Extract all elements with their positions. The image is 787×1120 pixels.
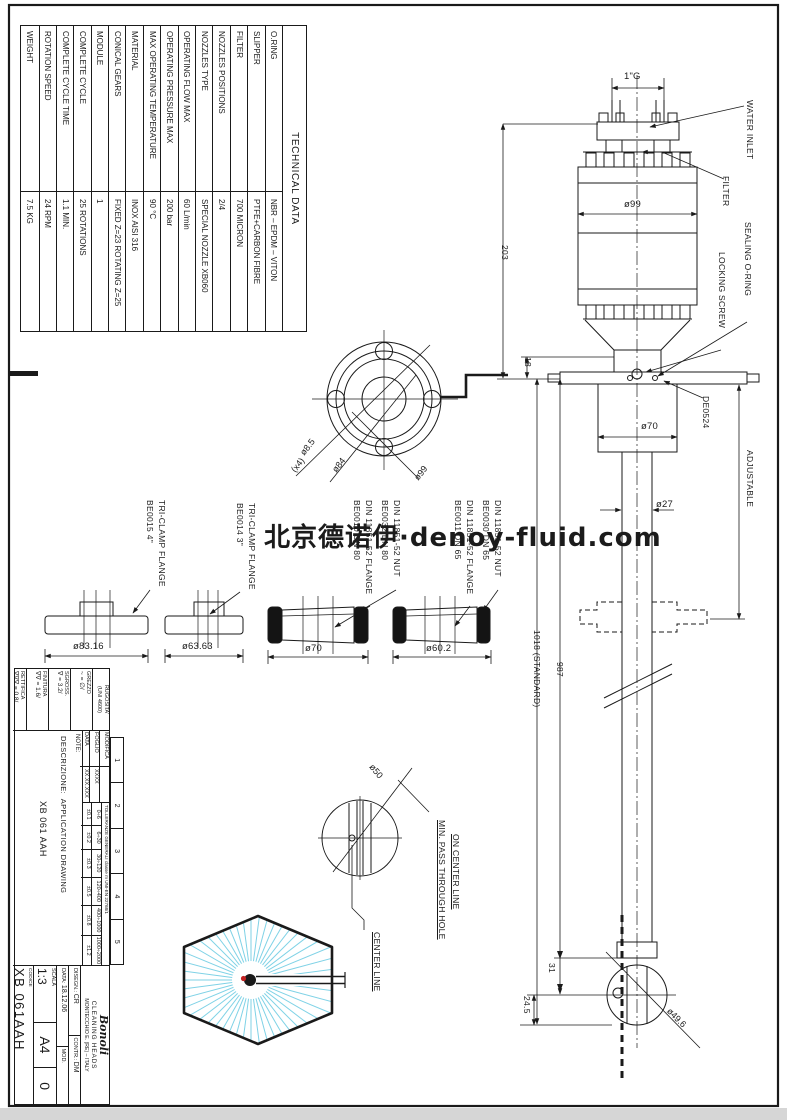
table-row: SLIPPERPTFE+CARBON FIBRE (247, 26, 264, 331)
dim-head-offset: 31 (547, 963, 557, 973)
spray-pattern (153, 882, 349, 1078)
dim-flange1-dia: ø83.16 (73, 642, 104, 652)
drawing-code: XB 061AAH (12, 968, 27, 1051)
pass-hole-note-line2: ON CENTER LINE (451, 834, 461, 910)
table-row: OPERATING FLOW MAX60 L/min (178, 26, 195, 331)
revision-col: 2 (111, 783, 123, 828)
de0524-label: DE0524 (701, 396, 711, 429)
roughness-title: RUGOSITA' (103, 685, 109, 714)
watermark-text: 北京德诺伊·denoy-fluid.com (264, 517, 662, 554)
table-row: ROTATION SPEED24 RPM (39, 26, 56, 331)
rev-cell: 0 (34, 1068, 56, 1104)
drawing-sheet: TECHNICAL DATA O.RINGNBR – EPDM – VITON … (0, 0, 787, 1120)
center-line-label: CENTER LINE (372, 932, 382, 992)
company-block: Bonoli CLEANING HEADS MONTECCHIO E. (RE)… (13, 966, 109, 1104)
revision-col: 1 (111, 738, 123, 783)
revision-col: 5 (111, 920, 123, 964)
descrizione-label: DESCRIZIONE: (59, 736, 68, 794)
description-line2: XB 061 AAH (38, 801, 48, 857)
note-label: NOTE: (74, 734, 80, 752)
table-row: O.RINGNBR – EPDM – VITON (265, 26, 282, 331)
flange2-type-label: TRI-CLAMP FLANGE (247, 503, 257, 590)
pass-hole-detail (318, 796, 402, 880)
dim-flange4-dia: ø60.2 (426, 644, 451, 654)
revision-col: 3 (111, 829, 123, 874)
technical-data-title: TECHNICAL DATA (282, 26, 306, 331)
title-block: RUGOSITA' (UNI 4600) GREZZO ~ = ∅/ SGROS… (14, 668, 110, 1105)
disegn-cell: DISEGN.: CR (69, 966, 80, 1036)
table-row: MATERIALINOX AISI 316 (125, 26, 142, 331)
sealing-oring-label: SEALING O-RING (743, 222, 753, 296)
table-row: MAX OPERATING TEMPERATURE90 °C (143, 26, 160, 331)
flange1-code-label: BE0015 4" (145, 500, 155, 543)
adjustable-label: ADJUSTABLE (745, 450, 755, 507)
table-row: WEIGHT7.5 KG (21, 26, 38, 331)
flange2-code-label: BE0014 3" (235, 503, 245, 546)
dim-head-bottom: 24.5 (522, 996, 532, 1014)
pass-hole-note-line1: MIN. PASS THROUGH HOLE (437, 820, 447, 940)
table-row: COMPLETE CYCLE TIME1.1 MIN. (56, 26, 73, 331)
table-row: MODULE1 (91, 26, 108, 331)
table-row: COMPLETE CYCLE25 ROTATIONS (73, 26, 90, 331)
spray-center-dot (244, 974, 256, 986)
revision-col: 4 (111, 874, 123, 919)
contr-cell: CONTR.: DM (69, 1036, 80, 1105)
modifica-label: MODIFICA (100, 731, 109, 767)
table-row: CONICAL GEARSFIXED Z=23 ROTATING Z=25 (108, 26, 125, 331)
flange-details (45, 590, 490, 654)
bonoli-logo: Bonoli (97, 966, 109, 1104)
table-row: OPERATING PRESSURE MAX200 bar (160, 26, 177, 331)
dim-length-standard: 1018 (STANDARD) (532, 630, 542, 708)
table-row: NOZZLES POSITIONS2/4 (212, 26, 229, 331)
dim-flange-dia: ø70 (641, 422, 658, 432)
tolerance-header: TOLLERANZE GENERALI classe m UNI-EN 2276… (101, 803, 109, 965)
modification-table: MODIFICA FOGLIO XXXX DATA XX.XX.XXX (82, 731, 109, 803)
roughness-row: RETTIFICA ∇∇∇ = 0.8/ (13, 669, 26, 730)
description-line1: APPLICATION DRAWING (59, 799, 68, 894)
tolerance-table: TOLLERANZE GENERALI classe m UNI-EN 2276… (82, 803, 109, 966)
codice-cell: CODICE XB 061AAH (10, 966, 33, 1104)
locking-screw-label: LOCKING SCREW (717, 252, 727, 328)
technical-data-table: TECHNICAL DATA O.RINGNBR – EPDM – VITON … (20, 25, 307, 332)
flange1-type-label: TRI-CLAMP FLANGE (157, 500, 167, 587)
foglio-label: FOGLIO (90, 731, 99, 767)
dim-length-to-center: 987 (555, 662, 565, 677)
description-area: NOTE: DESCRIZIONE: APPLICATION DRAWING X… (13, 731, 82, 966)
data-cell: DATA: 18.12.06 (57, 966, 68, 1047)
flange-top-view (296, 330, 458, 482)
bottom-gray-bar (0, 1108, 787, 1120)
roughness-title2: (UNI 4600) (97, 686, 103, 713)
mod-cell: MOD. (57, 1047, 68, 1104)
foglio-value: XXXX (90, 767, 99, 784)
filter-label: FILTER (721, 176, 731, 206)
spray-center-red-dot (241, 976, 246, 981)
roughness-row: SGROSS. ∇ = 3.2/ (48, 669, 70, 730)
revision-number-strip: 1 2 3 4 5 (110, 737, 124, 965)
table-row: FILTER700 MICRON (230, 26, 247, 331)
dim-shaft-dia: ø27 (656, 500, 673, 510)
dim-flange2-dia: ø63.63 (182, 642, 213, 652)
dim-flange-offset: 18 (523, 357, 533, 367)
dim-body-dia: ø99 (624, 200, 641, 210)
company-line2: MONTECCHIO E. (RE) – ITALY (80, 966, 89, 1104)
roughness-table: RUGOSITA' (UNI 4600) GREZZO ~ = ∅/ SGROS… (13, 669, 109, 731)
format-cell: A4 (34, 1023, 56, 1069)
table-row: NOZZLES TYPESPECIAL NOZZLE XB060 (195, 26, 212, 331)
scala-cell: SCALA 1:3 (34, 966, 56, 1023)
dim-height-top: 203 (500, 245, 510, 260)
roughness-row: FINITURA ∇∇ = 1.6/ (26, 669, 48, 730)
company-line1: CLEANING HEADS (89, 966, 97, 1104)
roughness-row: GREZZO ~ = ∅/ (70, 669, 92, 730)
dim-flange3-dia: ø70 (305, 644, 322, 654)
water-inlet-label: WATER INLET (745, 100, 755, 160)
dim-inlet-thread: 1"G (624, 72, 641, 82)
